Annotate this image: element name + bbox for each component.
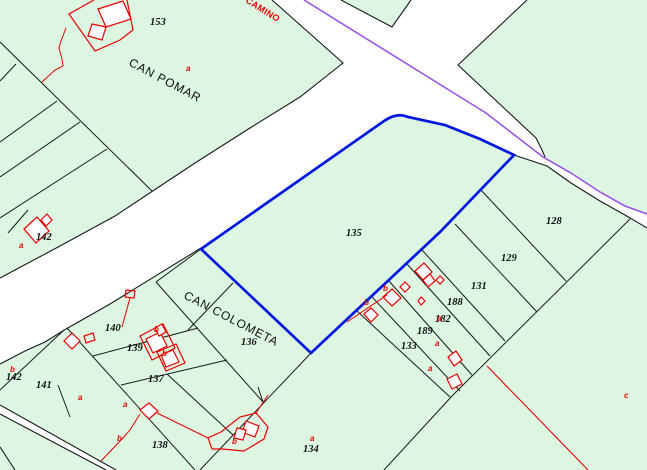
svg-text:134: 134: [303, 444, 319, 455]
svg-text:b: b: [117, 434, 122, 443]
svg-text:188: 188: [447, 297, 464, 308]
svg-text:a: a: [19, 241, 24, 250]
svg-text:c: c: [624, 391, 629, 400]
svg-text:142: 142: [36, 232, 53, 243]
svg-text:129: 129: [501, 253, 518, 264]
svg-text:131: 131: [471, 281, 487, 292]
svg-text:b: b: [383, 284, 388, 293]
svg-text:137: 137: [148, 374, 165, 385]
svg-text:133: 133: [401, 341, 417, 352]
svg-text:139: 139: [127, 343, 144, 354]
svg-text:b: b: [232, 437, 237, 446]
svg-text:140: 140: [105, 323, 122, 334]
svg-text:a: a: [78, 393, 83, 402]
svg-text:a: a: [437, 314, 442, 323]
svg-text:a: a: [435, 339, 440, 348]
svg-text:128: 128: [546, 216, 563, 227]
svg-text:a: a: [123, 400, 128, 409]
svg-text:a: a: [310, 434, 315, 443]
svg-text:141: 141: [36, 380, 52, 391]
svg-text:189: 189: [417, 326, 434, 337]
svg-text:a: a: [186, 64, 191, 73]
svg-text:b: b: [10, 365, 15, 374]
svg-text:b: b: [364, 298, 369, 307]
svg-text:b: b: [162, 349, 167, 358]
svg-text:b: b: [154, 325, 159, 334]
svg-text:a: a: [428, 364, 433, 373]
svg-text:135: 135: [346, 228, 362, 239]
svg-text:138: 138: [152, 440, 169, 451]
svg-text:153: 153: [150, 17, 166, 28]
